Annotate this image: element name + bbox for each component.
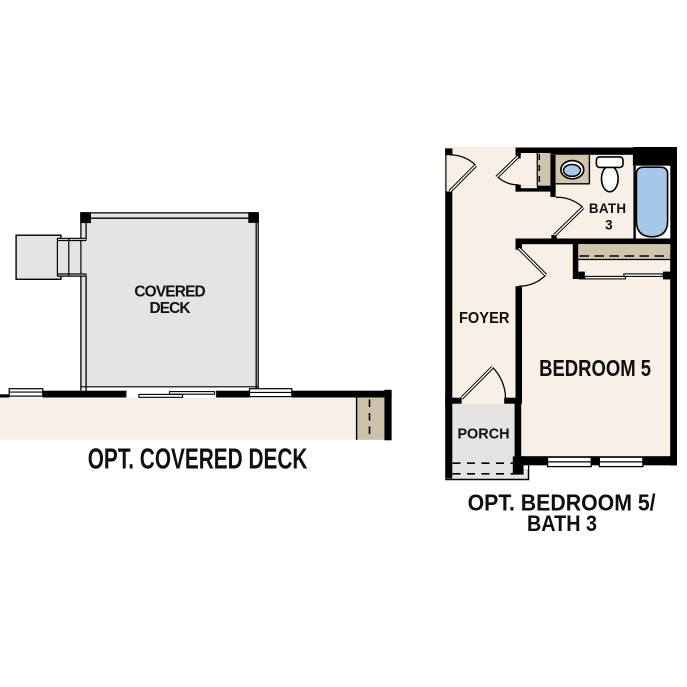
- svg-text:FOYER: FOYER: [459, 310, 509, 327]
- svg-text:BEDROOM 5: BEDROOM 5: [539, 355, 651, 381]
- svg-text:BATH: BATH: [589, 201, 626, 216]
- svg-text:DECK: DECK: [150, 300, 191, 317]
- svg-text:BATH 3: BATH 3: [527, 511, 597, 536]
- svg-text:OPT. COVERED DECK: OPT. COVERED DECK: [88, 444, 308, 476]
- svg-text:PORCH: PORCH: [457, 427, 509, 443]
- svg-text:COVERED: COVERED: [134, 283, 205, 300]
- svg-text:3: 3: [605, 218, 612, 233]
